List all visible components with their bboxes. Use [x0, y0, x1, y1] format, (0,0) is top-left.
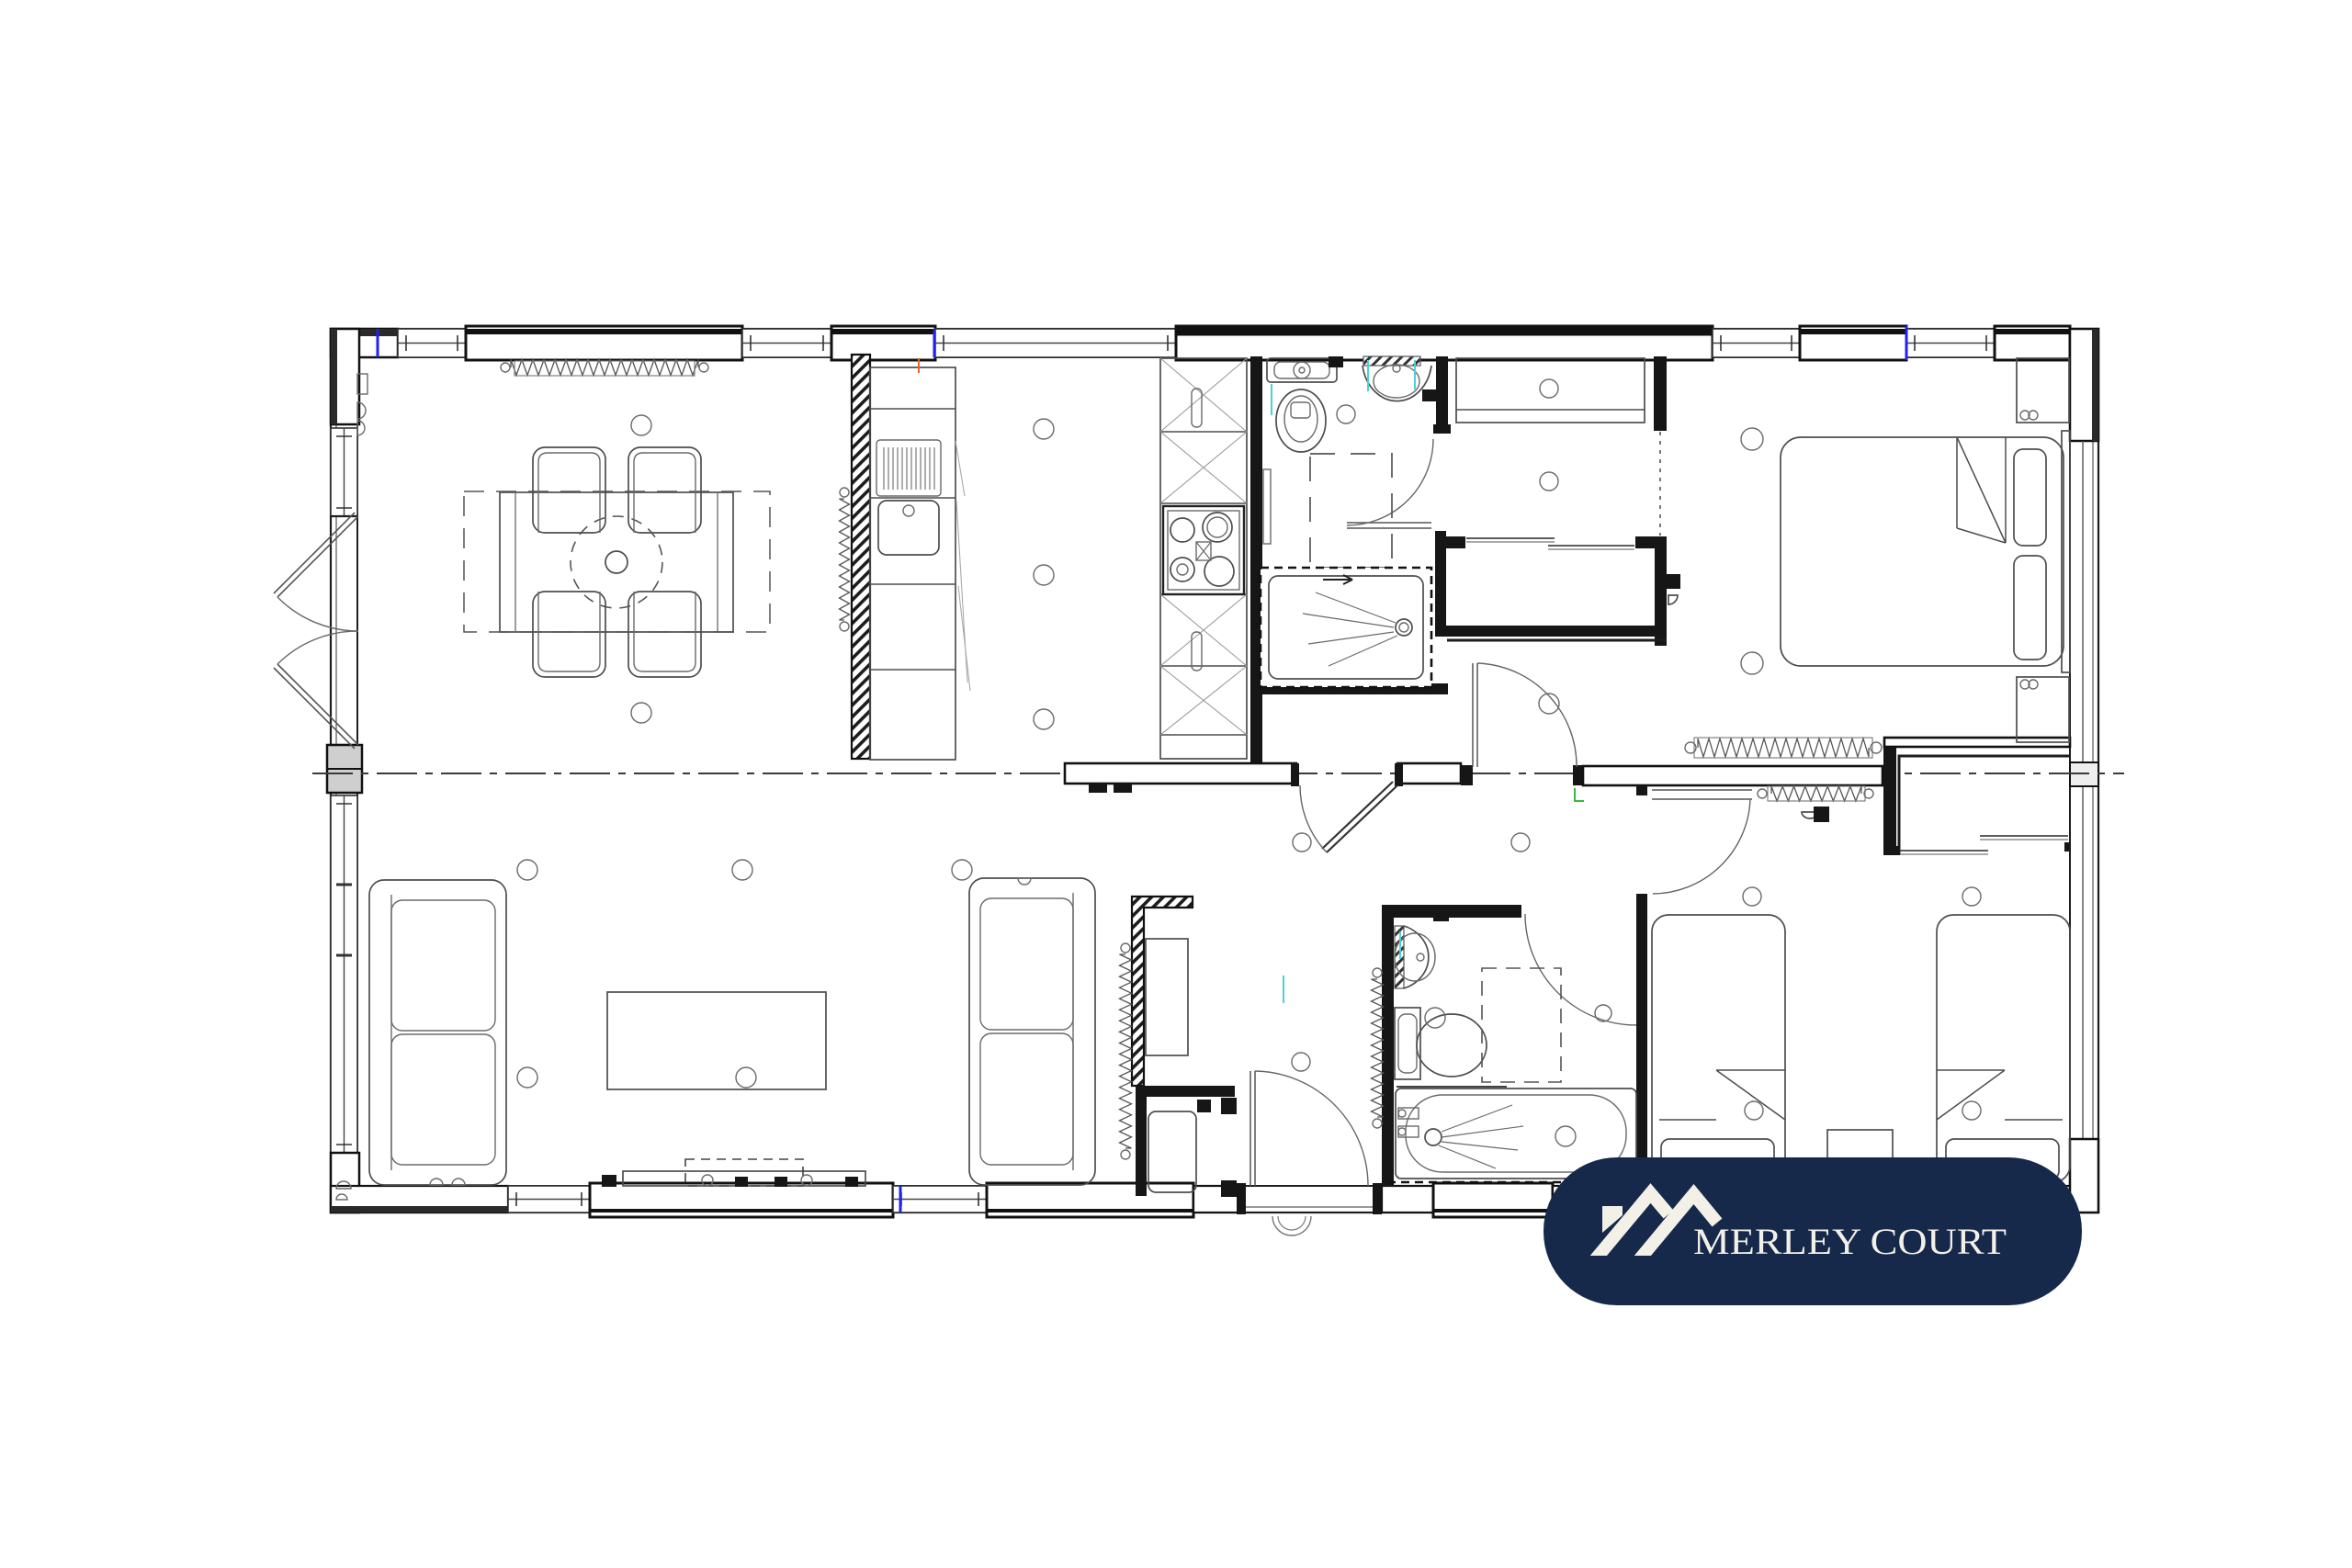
svg-text:MERLEY COURT: MERLEY COURT [1693, 1221, 2007, 1262]
